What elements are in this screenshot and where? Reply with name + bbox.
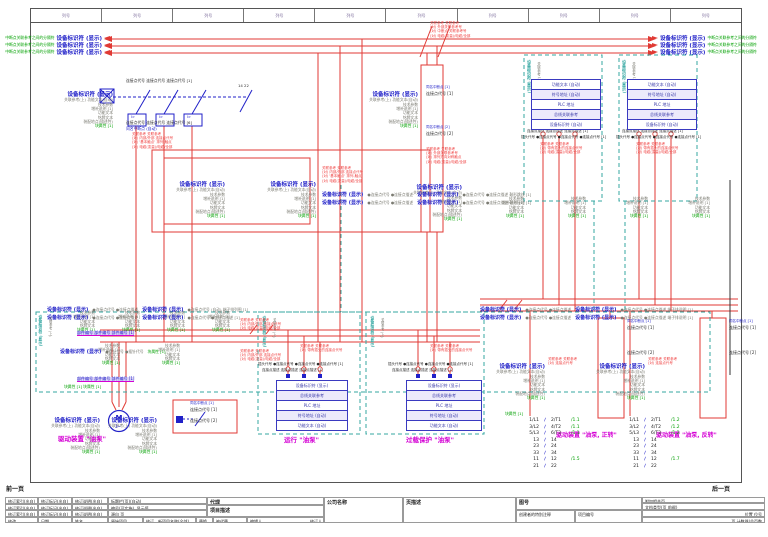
terminal-row: 设备标识符 (显示)●连接点代号 ●连接点描述设备标识符 (显示)●连接点代号 … <box>480 305 697 323</box>
block-property-label: 块属性 [1] <box>108 450 157 454</box>
motor-letter: M <box>116 415 123 423</box>
breaker-contacts <box>136 90 206 114</box>
editor-strip: 编辑人 修订人 <box>247 517 324 524</box>
contact-symbol-icon: ∕ <box>639 464 651 469</box>
block-prop-row: 块属性 [1] 块属性 [1] <box>64 385 101 389</box>
contact-right-pin: 6/T3 <box>551 431 568 436</box>
block-property-label: 块属性 [1] <box>163 328 185 332</box>
contact-symbol-icon: ∕ <box>639 418 651 423</box>
contact-page-ref: /1.5 <box>571 457 580 462</box>
breaker-pins-top: 连接点代号 连接点代号 连接点代号 [1] <box>126 79 192 83</box>
plc-table-row: 总线关联参考 <box>407 390 481 400</box>
doc-type-cell: 文档类型(页 前缀) <box>642 503 765 510</box>
plc-table-row: 符号地址 (自动) <box>277 410 347 420</box>
terminal-row-part: 设备标识符 (显示) <box>417 200 458 206</box>
motoraux-interrupt: 同名中断点 [1] <box>190 402 214 406</box>
property-stack: 设备标识符 (显示)关联参考(上) 功能文本(自动)技术参数增补说明 [1]功能… <box>369 92 418 129</box>
contact-symbol-icon: ∕ <box>539 444 551 449</box>
contact-page-ref: /1.1 <box>571 431 580 436</box>
separator-note: 中断点关联参考之间的分隔符 <box>5 49 54 55</box>
motoraux-pin-2: 连接点代号 [2] <box>190 419 217 423</box>
part-number-row-1: 部件编号 部件编号 部件编号 [1] <box>77 331 134 336</box>
property-stack: 技术参数增补说明 [1]功能文本铭牌文本块属性 [1] <box>564 197 586 219</box>
arrow-left-icon <box>104 43 110 47</box>
block-property-label: 块属性 [1] <box>176 214 225 218</box>
property-stack: 技术参数增补说明 [1]功能文本铭牌文本块属性 [1] <box>688 197 710 219</box>
red-annotation: 关联参考 关联参考(对) 内部/外部 连接点代号(对) 电缆(变量)/电缆/全部 <box>240 318 281 331</box>
contact-symbol-icon: ∕ <box>639 451 651 456</box>
terminal-row-part: ●连接点代号 ●连接点描述 <box>92 315 138 320</box>
column-header-cell: 列号 <box>600 9 671 22</box>
contact-right-pin: 22 <box>651 464 668 469</box>
agent-cell: 代理 <box>207 497 324 505</box>
red-annotation-line: (对) 电缆(变量)/电缆/全部 <box>132 145 173 149</box>
red-annotation-line: (对) 带有插头的连接点代号 <box>430 348 472 352</box>
contact-mirror: 1/L1∕2/T1/1.23/L2∕4/T2/1.25/L3∕6/T3/1.21… <box>622 418 680 470</box>
separator-note: 中断点关联参考之间的分隔符 <box>707 49 756 55</box>
termA-pin-2: 连接点代号 [2] <box>627 351 654 355</box>
block-prop-br: 块属性 [1] <box>505 412 523 416</box>
plcbox1-pin-desc: 连接点描述 连接点描述 连接点描述 [1] <box>527 130 588 134</box>
caption-overload: 过载保护 "油泵" <box>406 437 454 444</box>
terminal-row: 设备标识符 (显示)●连接点代号 ●连接点描述设备标识符 (显示)●连接点代号 … <box>322 190 535 208</box>
aux-terminals: 14 22 <box>238 84 249 88</box>
creator-note-cell: 创建者的特别注释 <box>516 510 575 523</box>
red-annotation: 关联参考 关联参考(对) 内部/外部 连接点代号(对) '基本触点' 排列-触点… <box>132 132 173 149</box>
plc-table-row: PLC 地址 <box>407 400 481 410</box>
device-tag-label: 设备标识符 (显示) <box>57 48 102 56</box>
project-desc-cell: 项目描述 <box>207 505 324 517</box>
red-annotation: 关联参考 关联参考(对) 内部/外部 连接点代号(对) '基本触点' 排列-触点… <box>322 166 363 183</box>
block-property-label: 块属性 [1] <box>51 450 100 454</box>
contact-left-pin: 11 <box>622 457 639 462</box>
red-annotation: 关联参考 关联参考(对) 内部/外部 连接点代号(对) 电缆(变量)/电缆/全部 <box>240 349 281 362</box>
column-header-cell: 列号 <box>244 9 315 22</box>
contact-mirror-row: 21∕22 <box>522 464 580 471</box>
block-property-label: 块属性 [1] <box>208 328 230 332</box>
titleblock-bottom-cell: 原始项目 <box>108 517 143 524</box>
contact-symbol-icon: ∕ <box>639 431 651 436</box>
reviser-label: 修订人 <box>310 519 322 523</box>
contact-symbol-icon: ∕ <box>539 431 551 436</box>
contact-left-pin: 23 <box>622 444 639 449</box>
plc-table-row: PLC 地址 <box>532 99 600 109</box>
red-annotation-line: (对) 电缆(变量)/电缆/全部 <box>240 326 281 330</box>
company-name-cell: 公司名称 <box>324 497 403 523</box>
terminal-row: 设备标识符 (显示)●插针代号 ●插针代号块属性 [1] <box>60 339 170 357</box>
plc-table-row: 功能文本 (自动) <box>532 80 600 89</box>
plc-table-row: 总线关联参考 <box>277 390 347 400</box>
contact-right-pin: 22 <box>551 464 568 469</box>
plc-table-row: 符号地址 (自动) <box>628 89 696 99</box>
contact-right-pin: 12 <box>651 457 668 462</box>
property-stack: 设备标识符 (显示)关联参考(上) 功能文本(自动)技术参数增补说明 [1]功能… <box>64 92 113 129</box>
contact-left-pin: 1/L1 <box>622 418 639 423</box>
titleblock-bottom-cell: 日期 <box>38 517 72 524</box>
contact-page-ref: /1.2 <box>671 418 680 423</box>
location-cell: 位置 位号 <box>642 510 765 517</box>
titleblock-bottom-cell: 被代替 <box>213 517 247 524</box>
plc-table-row: PLC 地址 <box>628 99 696 109</box>
column-header-cell: 列号 <box>315 9 386 22</box>
plc-address-table: 功能文本 (自动)符号地址 (自动)PLC 地址总线关联参考设备标识符 (自动) <box>531 79 601 130</box>
plc-table-row: 总线关联参考 <box>628 109 696 119</box>
bus-label-left: 中断点关联参考之间的分隔符设备标识符 (显示) <box>5 48 110 56</box>
contact-left-pin: 1/L1 <box>522 418 539 423</box>
contact-right-pin: 12 <box>551 457 568 462</box>
terminal-row-part: 块属性 [1] <box>148 349 166 354</box>
block-property-label: 块属性 [1] <box>98 361 120 365</box>
terminal-row-part: ●连接点代号 ●连接点描述 <box>525 315 571 320</box>
contact-symbol-icon: ∕ <box>539 425 551 430</box>
plc-table-row: 设备标识符 (自动) <box>628 119 696 129</box>
page-counter-cell: 页 计数器/总页数 <box>642 517 765 523</box>
duct-interrupt-1: 同名中断点 [1] <box>426 86 450 90</box>
red-annotation-line: (对) 电缆(变量)/电缆/全部 <box>430 34 470 38</box>
duct-pin-2: 连接点代号 [2] <box>426 132 453 136</box>
iobox1-pin-desc: 连接点描述 连接点描述 连接点描述 [1] <box>262 369 323 373</box>
project-no-cell: 项目编号 <box>575 510 642 523</box>
pole-trip-1: I> <box>131 116 135 120</box>
part-number-row-2: 部件编号 部件编号 部件编号 [1] <box>77 377 134 382</box>
plc-table-row: PLC 地址 <box>277 400 347 410</box>
prev-page: 前一页 <box>6 487 24 494</box>
contact-mirror: 1/L1∕2/T1/1.13/L2∕4/T2/1.15/L3∕6/T3/1.11… <box>522 418 580 470</box>
property-stack: 技术参数增补说明 [1]功能文本铭牌文本块属性 [1] <box>626 197 648 219</box>
terminal-row-part: 设备标识符 (显示) <box>575 315 616 321</box>
red-annotation: 关联参考 关联参考(对) 连接点代号 <box>548 357 577 365</box>
contact-left-pin: 3/L2 <box>522 425 539 430</box>
block-property-label: 块属性 [1] <box>596 396 645 400</box>
titleblock-bottom-cell: 修改 <box>5 517 38 524</box>
plcbox1-plug: 插头代号 ●连接点代号 ●连接点代号 ●连接点代号 [1] <box>521 136 606 140</box>
red-annotation-line: (对) 连接点代号 <box>648 361 677 365</box>
column-header-strip: 列号列号列号列号列号列号列号列号列号列号 <box>30 8 742 23</box>
block-property-label: 块属性 [1] <box>496 396 545 400</box>
termA-pin-1: 连接点代号 [1] <box>627 326 654 330</box>
plc-address-table: 设备标识符 (显示)总线关联参考PLC 地址符号地址 (自动)功能文本 (自动) <box>276 380 348 431</box>
motor-phase: 3~ <box>115 425 121 429</box>
termB-interrupt: 同名中断点 [1] <box>729 320 753 324</box>
red-annotation-line: (对) 排列方向对称触点 <box>426 155 466 159</box>
contact-symbol-icon: ∕ <box>639 438 651 443</box>
contact-right-pin: 14 <box>651 438 668 443</box>
breaker-pins-bottom: 连接点代号 连接点代号 连接点代号 [6] <box>126 121 192 125</box>
contact-right-pin: 14 <box>551 438 568 443</box>
red-annotation-line: (对) 电缆(变量)/电缆/全部 <box>540 150 582 154</box>
contact-right-pin: 6/T3 <box>651 431 668 436</box>
macrobox-rot-ref: 关联参考 (上) <box>48 317 51 337</box>
block-property-label: 块属性 [1] <box>626 214 648 218</box>
red-annotation: 关联参考 关联参考(对) 外部关联参考号(对) 排列方向对称触点(对) 电缆(变… <box>426 147 466 164</box>
contact-page-ref: /1.2 <box>671 425 680 430</box>
red-annotation-line: (对) 中断点 关联参考号 <box>430 29 470 33</box>
property-stack: 设备标识符 (显示)关联参考(上) 功能文本(自动)技术参数增补说明 [1]功能… <box>596 364 645 401</box>
schematic-page: 列号列号列号列号列号列号列号列号列号列号 <box>0 0 768 537</box>
plc-table-row: 总线关联参考 <box>532 109 600 119</box>
block-property-label: 块属性 [1] <box>369 124 418 128</box>
terminal-row-part: 设备标识符 (显示) <box>60 349 101 355</box>
caption-run: 运行 "油泵" <box>284 437 319 444</box>
contact-left-pin: 33 <box>522 451 539 456</box>
block-property-label: 块属性 [1] <box>688 214 710 218</box>
column-header-cell: 列号 <box>173 9 244 22</box>
contact-left-pin: 5/L3 <box>522 431 539 436</box>
plc-table-row: 功能文本 (自动) <box>277 420 347 430</box>
pole-trip-2: I> <box>159 116 163 120</box>
contact-left-pin: 33 <box>622 451 639 456</box>
arrow-right-icon <box>652 36 658 40</box>
contact-left-pin: 13 <box>522 438 539 443</box>
contact-left-pin: 21 <box>622 464 639 469</box>
aux-contact <box>240 90 252 112</box>
plc-address-table: 功能文本 (自动)符号地址 (自动)PLC 地址总线关联参考设备标识符 (自动) <box>627 79 697 130</box>
plc-table-row: 功能文本 (自动) <box>628 80 696 89</box>
arrow-left-icon <box>104 50 110 54</box>
titleblock-bottom-cell: 姓名 <box>72 517 108 524</box>
terminal-row-part: ●连接点代号 ●连接点描述 [1] <box>187 315 239 320</box>
contact-left-pin: 11 <box>522 457 539 462</box>
contact-right-pin: 2/T1 <box>651 418 668 423</box>
plcbox2-rot-tag: 设备标识符 (显示) <box>622 60 626 93</box>
red-annotation: 关联参考 关联参考(对) 连接点代号 <box>648 357 677 365</box>
plcbox2-pin-desc: 连接点描述 连接点描述 连接点描述 [1] <box>622 130 683 134</box>
contact-mirror-row: 21∕22 <box>622 464 680 471</box>
device-tag-label: 设备标识符 (显示) <box>660 48 705 56</box>
titleblock-bottom-cell: 替换 <box>196 517 213 524</box>
bus-label-right: 设备标识符 (显示)中断点关联参考之间的分隔符 <box>652 48 757 56</box>
column-header-cell: 列号 <box>671 9 741 22</box>
plc-table-row: 设备标识符 (自动) <box>532 119 600 129</box>
plc-table-row: 符号地址 (自动) <box>532 89 600 99</box>
contact-symbol-icon: ∕ <box>539 457 551 462</box>
plc-address-table: 设备标识符 (显示)总线关联参考PLC 地址符号地址 (自动)功能文本 (自动) <box>406 380 482 431</box>
plc-table-row: 符号地址 (自动) <box>407 410 481 420</box>
contact-symbol-icon: ∕ <box>539 451 551 456</box>
terminal-row-part: 设备标识符 (显示) <box>142 315 183 321</box>
contact-symbol-icon: ∕ <box>639 444 651 449</box>
contact-page-ref: /1.1 <box>571 425 580 430</box>
column-header-cell: 列号 <box>31 9 102 22</box>
block-property-label: 块属性 [1] <box>502 214 524 218</box>
page-desc-cell: 页描述 <box>403 497 516 523</box>
contact-symbol-icon: ∕ <box>539 438 551 443</box>
red-annotation-line: (对) 连接点代号 <box>548 361 577 365</box>
contact-right-pin: 34 <box>551 451 568 456</box>
property-stack: 设备标识符 (显示)关联参考(上) 功能文本(自动)技术参数增补说明 [1]功能… <box>176 182 225 219</box>
block-property-label: 块属性 [1] <box>413 217 462 221</box>
plc-table-row: 设备标识符 (显示) <box>407 381 481 390</box>
arrow-right-icon <box>652 43 658 47</box>
contact-left-pin: 13 <box>622 438 639 443</box>
contact-symbol-icon: ∕ <box>539 464 551 469</box>
next-page: 后一页 <box>712 487 730 494</box>
column-header-cell: 列号 <box>529 9 600 22</box>
terminal-row-part: ●连接点代号 ●连接点描述 <box>367 200 413 205</box>
terminal-row-part: 设备标识符 (显示) <box>480 315 521 321</box>
editor-label: 编辑人 <box>250 519 262 523</box>
motoraux-pin-1: 连接点代号 [1] <box>190 408 217 412</box>
caption-motor: 驱动装置 "油泵" <box>58 436 106 443</box>
contact-symbol-icon: ∕ <box>539 418 551 423</box>
macrobox-rot-tag: 设备标识符 (显示) <box>39 315 43 346</box>
contact-right-pin: 2/T1 <box>551 418 568 423</box>
terminal-row-part: ●插针代号 ●插针代号 <box>105 349 143 354</box>
plcbox2-plug: 插头代号 ●连接点代号 ●连接点代号 ●连接点代号 [1] <box>616 136 701 140</box>
terminal-row-part: 设备标识符 (显示) <box>47 315 88 321</box>
contact-right-pin: 4/T2 <box>651 425 668 430</box>
block-property-label: 块属性 [1] <box>158 361 180 365</box>
contact-left-pin: 5/L3 <box>622 431 639 436</box>
iobox2-plug: 插头代号 ●连接点代号 ●连接点代号 ●连接点代号 [1] <box>388 363 473 367</box>
red-annotation: 关联参考 关联参考(对) 带有插头的连接点代号(对) 电缆(变量)/电缆/全部 <box>540 142 582 155</box>
contact-right-pin: 34 <box>651 451 668 456</box>
contact-symbol-icon: ∕ <box>639 457 651 462</box>
terminal-row: 设备标识符 (显示)●连接点代号 ●连接点描述设备标识符 (显示)●连接点代号 … <box>47 305 244 323</box>
contact-page-ref: /1.7 <box>671 457 680 462</box>
iobox2-pin-desc: 连接点描述 连接点描述 连接点描述 [1] <box>392 369 453 373</box>
termB-pin-1: 连接点代号 [1] <box>729 326 756 330</box>
property-stack: 设备标识符 (显示)关联参考(上) 功能文本(自动)技术参数增补说明 [1]功能… <box>496 364 545 401</box>
red-annotation: 关联参考 关联参考(对) 带有插头的连接点代号 <box>430 344 472 352</box>
contact-page-ref: /1.2 <box>671 431 680 436</box>
red-annotation: 关联参考 关联参考(对) 外部关联参考号(对) 中断点 关联参考号(对) 电缆(… <box>430 21 470 38</box>
duct-pin-1: 连接点代号 [1] <box>426 92 453 96</box>
contact-symbol-icon: ∕ <box>639 425 651 430</box>
termB-pin-2: 连接点代号 [2] <box>729 351 756 355</box>
red-annotation-line: (对) '基本触点' 排列-触点 <box>322 174 363 178</box>
red-annotation-line: (对) 电缆(变量)/电缆/全部 <box>322 179 363 183</box>
block-property-label: 块属性 [1] <box>267 214 316 218</box>
duct-interrupt-2: 同名中断点 [2] <box>426 126 450 130</box>
property-stack: 设备标识符 (显示)关联参考(上) 功能文本(自动)技术参数增补说明 [1]功能… <box>267 182 316 219</box>
block-property-label: 块属性 [1] <box>564 214 586 218</box>
block-property-label: 块属性 [1] <box>64 124 113 128</box>
titleblock-bottom-cell: 修订、新项目名称(全部) <box>143 517 196 524</box>
contact-left-pin: 23 <box>522 444 539 449</box>
contact-left-pin: 3/L2 <box>622 425 639 430</box>
contact-right-pin: 24 <box>551 444 568 449</box>
arrow-right-icon <box>652 50 658 54</box>
termA-interrupt: 同名中断点 [1] <box>627 320 651 324</box>
contact-right-pin: 4/T2 <box>551 425 568 430</box>
terminal-row-part: 设备标识符 (显示) <box>322 200 363 206</box>
arrow-left-icon <box>104 36 110 40</box>
red-annotation: 关联参考 关联参考(对) 带有插头的连接点代号 <box>300 344 342 352</box>
contact-right-pin: 24 <box>651 444 668 449</box>
red-annotation-line: (对) 带有插头的连接点代号 <box>300 348 342 352</box>
red-annotation-line: (对) 电缆(变量)/电缆/全部 <box>240 357 281 361</box>
red-annotation-line: (对) 电缆(变量)/电缆/全部 <box>426 160 466 164</box>
column-header-cell: 列号 <box>102 9 173 22</box>
plc-table-row: 功能文本 (自动) <box>407 420 481 430</box>
breaker-interrupt: 同名中断点 (自动) <box>126 127 157 131</box>
iobox2-rot-tag: 设备标识符 (显示) <box>371 316 375 347</box>
red-annotation-line: (对) '基本触点' 排列-触点 <box>132 140 173 144</box>
drawing-no-cell: 图号 <box>516 497 642 510</box>
pole-trip-3: I> <box>187 116 191 120</box>
plc-table-row: 设备标识符 (显示) <box>277 381 347 390</box>
contact-page-ref: /1.1 <box>571 418 580 423</box>
terminal-row-part: ●连接点代号 ●连接点描述 鞍形接地 [1] <box>462 200 531 205</box>
red-annotation-line: (对) 电缆(变量)/电缆/全部 <box>636 150 678 154</box>
iobox1-plug: 插头代号 ●连接点代号 ●连接点代号 ●连接点代号 [1] <box>258 363 343 367</box>
red-annotation: 关联参考 关联参考(对) 带有插头的连接点代号(对) 电缆(变量)/电缆/全部 <box>636 142 678 155</box>
contact-left-pin: 21 <box>522 464 539 469</box>
iobox2-rot-ref: 关联参考 (上) <box>380 318 383 338</box>
